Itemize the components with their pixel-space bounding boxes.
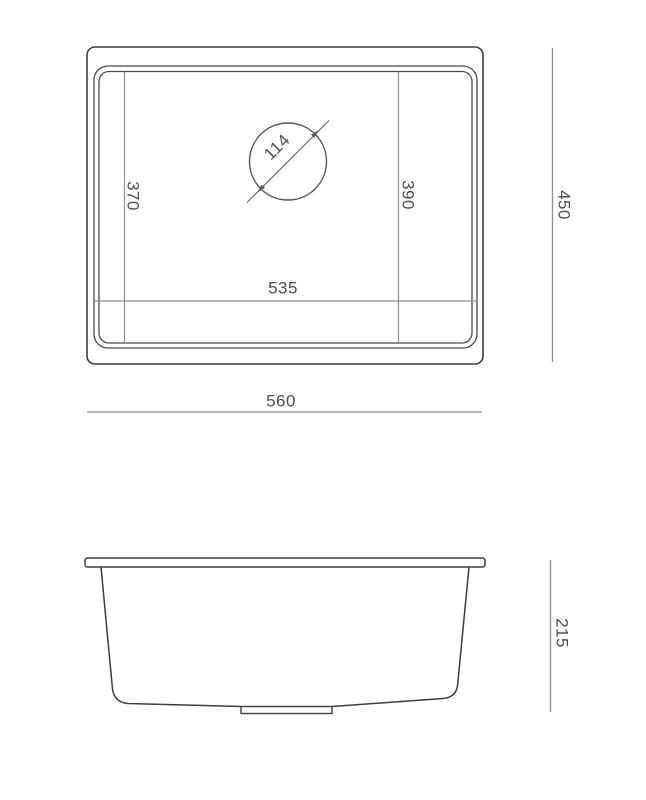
dim-label-215: 215 xyxy=(554,618,571,648)
dim-label-535: 535 xyxy=(268,280,298,297)
dim-label-370: 370 xyxy=(125,181,142,211)
sink-outer-edge xyxy=(87,47,483,364)
top-view xyxy=(87,47,553,412)
side-view xyxy=(85,558,551,714)
dim-label-450: 450 xyxy=(556,190,573,220)
side-rim-bar xyxy=(85,558,485,567)
bowl-rim-outer xyxy=(94,66,477,348)
dim-label-560: 560 xyxy=(266,393,296,410)
drawing-linework xyxy=(0,0,646,800)
dim-label-390: 390 xyxy=(400,180,417,210)
side-drain-fitting xyxy=(241,707,332,714)
side-bowl-profile xyxy=(101,567,469,707)
sink-dimension-drawing: 370 390 114 535 560 450 215 xyxy=(0,0,646,800)
